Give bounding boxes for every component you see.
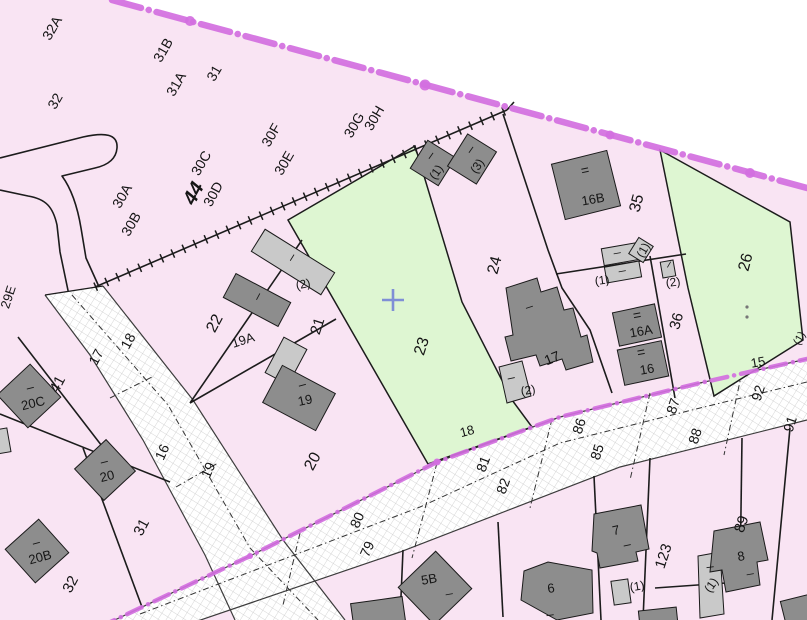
map-label: 19: [296, 391, 313, 409]
small-dot: [745, 305, 748, 308]
map-label: (1): [594, 272, 610, 288]
boundary-dot: [247, 553, 253, 559]
map-label: 15: [750, 353, 767, 370]
boundary-dot: [185, 16, 195, 26]
cadastral-map: 32A31B31A313230A30B30C4430D30F30E30G30H2…: [0, 0, 807, 620]
map-label: (2): [294, 276, 311, 293]
map-label: 16: [639, 360, 656, 377]
boundary-dot: [434, 459, 441, 466]
boundary-dot: [606, 131, 615, 140]
map-label: 5B: [420, 570, 438, 588]
map-label: (2): [665, 274, 681, 290]
map-label: (1): [629, 578, 646, 594]
small-dot: [745, 315, 748, 318]
boundary-dot: [745, 168, 755, 178]
boundary-dot: [420, 80, 431, 91]
map-label: (2): [520, 382, 537, 398]
map-canvas[interactable]: 32A31B31A313230A30B30C4430D30F30E30G30H2…: [0, 0, 807, 620]
